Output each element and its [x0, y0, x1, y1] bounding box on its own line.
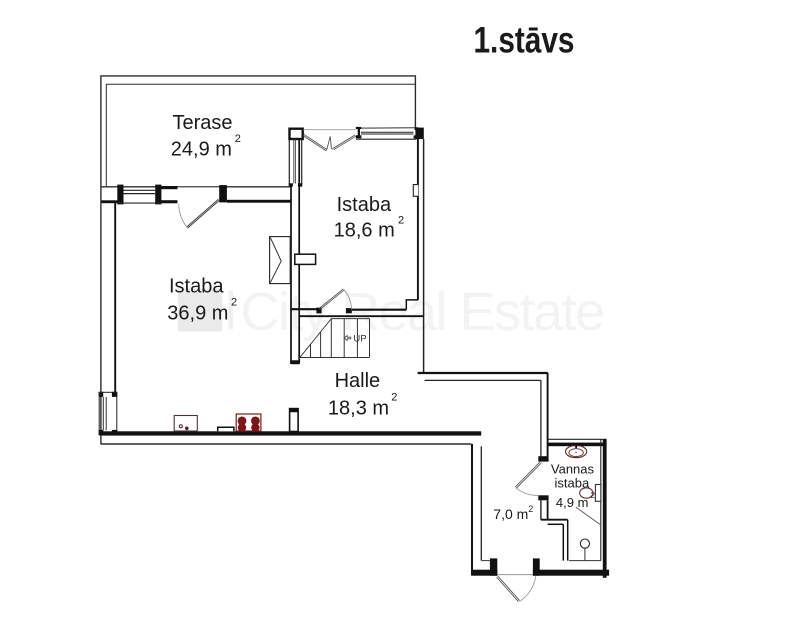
svg-text:Istaba: Istaba	[337, 194, 392, 216]
svg-text:2: 2	[391, 391, 397, 403]
svg-text:Halle: Halle	[335, 370, 381, 392]
svg-text:18,3 m: 18,3 m	[328, 398, 389, 420]
svg-text:City Real Estate: City Real Estate	[241, 282, 604, 342]
svg-text:UP: UP	[353, 333, 366, 344]
svg-text:2: 2	[398, 215, 404, 227]
svg-text:2: 2	[235, 133, 241, 145]
svg-text:Istaba: Istaba	[169, 276, 224, 298]
svg-text:36,9 m: 36,9 m	[167, 303, 228, 325]
svg-text:24,9 m: 24,9 m	[171, 139, 232, 161]
svg-text:2: 2	[231, 296, 237, 308]
svg-text:2: 2	[528, 504, 533, 514]
svg-text:7,0 m: 7,0 m	[493, 506, 528, 522]
svg-text:1.stāvs: 1.stāvs	[474, 20, 575, 61]
svg-text:Terase: Terase	[173, 112, 233, 134]
svg-text:4,9 m: 4,9 m	[556, 495, 589, 510]
svg-text:18,6 m: 18,6 m	[334, 220, 395, 242]
svg-text:Vannas: Vannas	[551, 461, 595, 476]
